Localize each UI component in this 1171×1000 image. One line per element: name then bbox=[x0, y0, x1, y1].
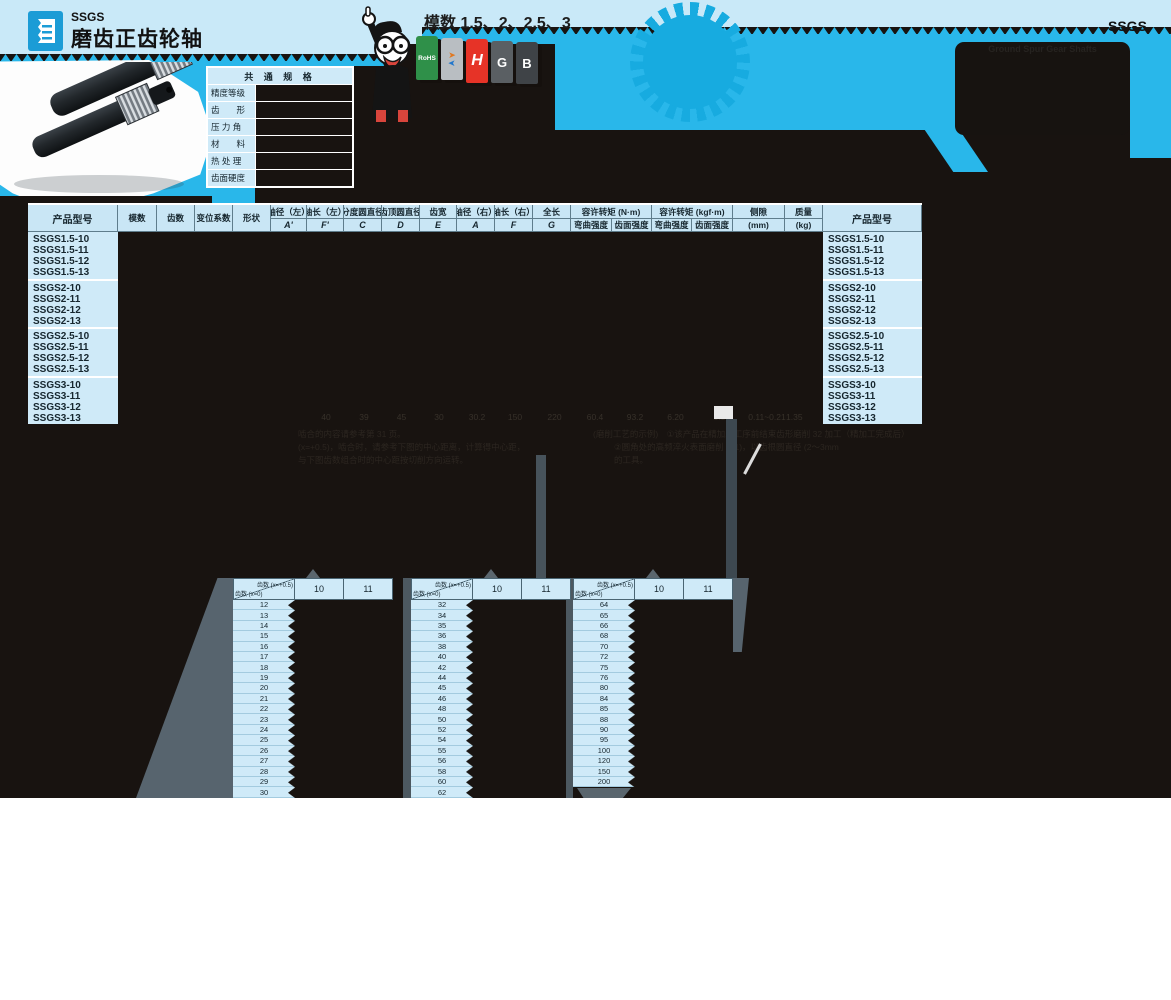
tooth-count-row: 40 bbox=[411, 652, 473, 662]
spec-value-obscured bbox=[255, 102, 352, 118]
product-group: SSGS3-10SSGS3-11SSGS3-12SSGS3-13 bbox=[823, 378, 922, 425]
tooth-count-row: 21 bbox=[233, 694, 295, 704]
sub-a: A bbox=[457, 219, 495, 232]
tooth-count-row: 200 bbox=[573, 777, 635, 787]
faint-note-right-1: (磨削工艺的示例) ①该产品在精加工工序前结束齿形磨削 32 加工（精加工完成后… bbox=[593, 428, 909, 441]
blue-band-mid bbox=[555, 34, 958, 130]
product-code: SSGS2-10 bbox=[828, 283, 922, 294]
faint-note-left-1: 啮合的内容请参考第 31 页。 bbox=[298, 428, 406, 441]
tooth-count-row: 95 bbox=[573, 735, 635, 745]
tooth-table-1: 齿数 (x=+0.5) 齿数 (x=0) 10 11 1213141516171… bbox=[233, 578, 393, 798]
rohs-badge: RoHS bbox=[416, 36, 438, 80]
tooth-count-row: 58 bbox=[411, 767, 473, 777]
product-code: SSGS3-10 bbox=[828, 380, 922, 391]
product-code: SSGS3-11 bbox=[33, 391, 118, 402]
tooth-count-row: 24 bbox=[233, 725, 295, 735]
product-code: SSGS3-13 bbox=[33, 413, 118, 424]
slate-strip-1 bbox=[403, 578, 411, 798]
tooth-count-row: 76 bbox=[573, 673, 635, 683]
col-torque-kgf: 容许转矩 (kgf·m) bbox=[652, 205, 733, 219]
common-specs-title: 共 通 规 格 bbox=[208, 68, 352, 84]
product-code: SSGS2.5-12 bbox=[33, 353, 118, 364]
spec-label: 热 处 理 bbox=[208, 153, 255, 169]
tooth-count-row: 90 bbox=[573, 725, 635, 735]
spec-row: 齿面硬度 bbox=[208, 169, 352, 186]
tooth-count-row: 16 bbox=[233, 642, 295, 652]
product-group: SSGS2.5-10SSGS2.5-11SSGS2.5-12SSGS2.5-13 bbox=[823, 329, 922, 376]
product-code: SSGS1.5-12 bbox=[33, 256, 118, 267]
main-product-table: 产品型号 模数 齿数 变位系数 形状 轴径（左） 轴长（左） 分度圆直径 齿顶圆… bbox=[28, 203, 922, 424]
tooth-count-row: 34 bbox=[411, 610, 473, 620]
product-code: SSGS2.5-12 bbox=[828, 353, 922, 364]
tooth-count-row: 68 bbox=[573, 631, 635, 641]
faint-cell: 0.11~0.21 bbox=[748, 411, 786, 423]
product-column-left: SSGS1.5-10SSGS1.5-11SSGS1.5-12SSGS1.5-13… bbox=[28, 232, 118, 424]
tooth-count-row: 23 bbox=[233, 714, 295, 724]
product-code: SSGS2-11 bbox=[828, 294, 922, 305]
col-tip-dia: 齿顶圆直径 bbox=[382, 205, 420, 219]
col-face-width: 齿宽 bbox=[420, 205, 457, 219]
tooth-rows: 32343536384042444546485052545556586062 bbox=[411, 600, 473, 798]
dark-info-box: Ground Spur Gear Shafts bbox=[955, 42, 1130, 135]
product-code: SSGS3-13 bbox=[828, 413, 922, 424]
col-shaft-len-left: 轴长（左） bbox=[307, 205, 344, 219]
page-bottom-margin bbox=[0, 798, 1171, 1000]
tooth-rows: 12131415161718192021222324252627282930 bbox=[233, 600, 295, 798]
product-code: SSGS2-10 bbox=[33, 283, 118, 294]
col-10: 10 bbox=[295, 578, 344, 600]
tooth-count-row: 60 bbox=[411, 777, 473, 787]
col-11: 11 bbox=[344, 578, 393, 600]
main-table-body: SSGS1.5-10SSGS1.5-11SSGS1.5-12SSGS1.5-13… bbox=[28, 232, 922, 424]
tooth-count-row: 120 bbox=[573, 756, 635, 766]
product-code: SSGS1.5-12 bbox=[828, 256, 922, 267]
faint-cell: 150 bbox=[496, 411, 534, 423]
tooth-count-row: 44 bbox=[411, 673, 473, 683]
diagonal-header-cell: 齿数 (x=+0.5) 齿数 (x=0) bbox=[573, 578, 635, 600]
col-module: 模数 bbox=[118, 205, 157, 232]
col-10: 10 bbox=[635, 578, 684, 600]
product-code: SSGS1.5-10 bbox=[828, 234, 922, 245]
teeth-shifted-label: 齿数 (x=+0.5) bbox=[435, 580, 471, 589]
black-badge: B bbox=[516, 42, 538, 84]
spec-row: 热 处 理 bbox=[208, 152, 352, 169]
product-column-right: SSGS1.5-10SSGS1.5-11SSGS1.5-12SSGS1.5-13… bbox=[823, 232, 922, 424]
product-code: SSGS2-13 bbox=[828, 316, 922, 327]
tooth-count-row: 64 bbox=[573, 600, 635, 610]
sub-f-prime: F' bbox=[307, 219, 344, 232]
sub-e: E bbox=[420, 219, 457, 232]
faint-cell: 40 bbox=[307, 411, 345, 423]
tooth-count-row: 55 bbox=[411, 746, 473, 756]
tooth-count-row: 45 bbox=[411, 683, 473, 693]
common-specs-table: 共 通 规 格 精度等级 齿 形 压 力 角 材 bbox=[206, 66, 354, 188]
spec-row: 齿 形 bbox=[208, 101, 352, 118]
tooth-count-row: 36 bbox=[411, 631, 473, 641]
spec-row: 精度等级 bbox=[208, 84, 352, 101]
faint-cell: 30.2 bbox=[458, 411, 496, 423]
sub-a-prime: A' bbox=[271, 219, 307, 232]
col-shaft-dia-right: 轴径（右） bbox=[457, 205, 495, 219]
product-code: SSGS3-12 bbox=[33, 402, 118, 413]
gear-icon bbox=[630, 2, 750, 122]
spec-value-obscured bbox=[255, 153, 352, 169]
finishing-badge: ➤➤ bbox=[441, 38, 463, 80]
tooth-count-row: 19 bbox=[233, 673, 295, 683]
product-code: SSGS1.5-13 bbox=[33, 267, 118, 278]
tooth-count-row: 100 bbox=[573, 746, 635, 756]
tooth-count-row: 38 bbox=[411, 642, 473, 652]
product-code: SSGS2-13 bbox=[33, 316, 118, 327]
tooth-count-row: 88 bbox=[573, 714, 635, 724]
common-specs-rows: 精度等级 齿 形 压 力 角 材 料 bbox=[208, 84, 352, 186]
module-note: 模数 1.5、2、2.5、3 bbox=[424, 9, 571, 33]
tooth-count-row: 13 bbox=[233, 610, 295, 620]
tooth-count-row: 42 bbox=[411, 662, 473, 672]
ground-badge: G bbox=[491, 41, 513, 83]
catalog-page: Ground Spur Gear Shafts bbox=[0, 0, 1171, 1000]
product-group: SSGS2-10SSGS2-11SSGS2-12SSGS2-13 bbox=[823, 281, 922, 328]
faint-cell: 45 bbox=[383, 411, 420, 423]
tooth-count-row: 50 bbox=[411, 714, 473, 724]
spec-label: 压 力 角 bbox=[208, 119, 255, 135]
spec-row: 材 料 bbox=[208, 135, 352, 152]
tooth-count-row: 84 bbox=[573, 694, 635, 704]
product-code: SSGS1.5-10 bbox=[33, 234, 118, 245]
faint-cell: 39 bbox=[345, 411, 383, 423]
sawtooth-edge-icon bbox=[628, 600, 635, 788]
spec-row: 压 力 角 bbox=[208, 118, 352, 135]
sub-c: C bbox=[344, 219, 382, 232]
sub-surface-nm: 齿面强度 bbox=[612, 219, 652, 232]
col-shift: 变位系数 bbox=[195, 205, 233, 232]
teeth-standard-label: 齿数 (x=0) bbox=[575, 589, 603, 598]
faint-english-title: Ground Spur Gear Shafts bbox=[988, 44, 1097, 54]
sub-mass-unit: (kg) bbox=[785, 219, 823, 232]
col-10: 10 bbox=[473, 578, 522, 600]
blue-square-right bbox=[1130, 34, 1171, 158]
faint-cell: 93.2 bbox=[615, 411, 655, 423]
faint-cell: 220 bbox=[534, 411, 575, 423]
spec-value-obscured bbox=[255, 119, 352, 135]
tooth-count-row: 12 bbox=[233, 600, 295, 610]
faint-note-left-3: 与下图齿数组合时的中心距按切削方向运转。 bbox=[298, 454, 468, 467]
product-code: SSGS2.5-10 bbox=[33, 331, 118, 342]
dark-mass-right bbox=[555, 130, 1171, 205]
faint-cell: 6.20 bbox=[655, 411, 696, 423]
spec-label: 齿面硬度 bbox=[208, 170, 255, 186]
tooth-count-row: 17 bbox=[233, 652, 295, 662]
hardened-badge: H bbox=[466, 39, 488, 83]
col-total-length: 全长 bbox=[533, 205, 571, 219]
faint-cell: 30 bbox=[420, 411, 458, 423]
product-code: SSGS2-12 bbox=[828, 305, 922, 316]
product-code: SSGS2.5-10 bbox=[828, 331, 922, 342]
spec-value-obscured bbox=[255, 170, 352, 186]
sub-surface-kgf: 齿面强度 bbox=[692, 219, 733, 232]
product-code: SSGS2-11 bbox=[33, 294, 118, 305]
tooth-count-row: 28 bbox=[233, 767, 295, 777]
tooth-count-row: 56 bbox=[411, 756, 473, 766]
tooth-count-row: 65 bbox=[573, 610, 635, 620]
spec-label: 材 料 bbox=[208, 136, 255, 152]
tooth-count-row: 32 bbox=[411, 600, 473, 610]
tooth-table-2: 齿数 (x=+0.5) 齿数 (x=0) 10 11 3234353638404… bbox=[411, 578, 571, 798]
product-code: SSGS3-11 bbox=[828, 391, 922, 402]
product-code: SSGS3-12 bbox=[828, 402, 922, 413]
tooth-table-header: 齿数 (x=+0.5) 齿数 (x=0) 10 11 bbox=[573, 578, 733, 600]
diagonal-header-cell: 齿数 (x=+0.5) 齿数 (x=0) bbox=[233, 578, 295, 600]
corner-code: SSGS bbox=[1108, 18, 1147, 34]
certification-badges: RoHS ➤➤ H G B bbox=[416, 36, 538, 80]
product-code: SSGS1.5-11 bbox=[828, 245, 922, 256]
product-code: SSGS2-12 bbox=[33, 305, 118, 316]
sub-bending-kgf: 弯曲强度 bbox=[652, 219, 692, 232]
tooth-count-row: 27 bbox=[233, 756, 295, 766]
faint-cell: 60.4 bbox=[575, 411, 615, 423]
col-backlash: 侧隙 bbox=[733, 205, 785, 219]
series-logo-icon bbox=[28, 11, 63, 51]
tooth-count-row: 48 bbox=[411, 704, 473, 714]
spec-label: 齿 形 bbox=[208, 102, 255, 118]
tooth-count-row: 80 bbox=[573, 683, 635, 693]
tooth-count-row: 150 bbox=[573, 767, 635, 777]
spec-value-obscured bbox=[255, 136, 352, 152]
tooth-count-row: 66 bbox=[573, 621, 635, 631]
tooth-count-row: 70 bbox=[573, 642, 635, 652]
product-group: SSGS1.5-10SSGS1.5-11SSGS1.5-12SSGS1.5-13 bbox=[823, 232, 922, 279]
product-code: SSGS1.5-11 bbox=[33, 245, 118, 256]
sawtooth-edge-icon bbox=[466, 600, 473, 798]
tooth-count-row: 30 bbox=[233, 787, 295, 797]
slate-cap bbox=[577, 788, 631, 798]
tooth-table-header: 齿数 (x=+0.5) 齿数 (x=0) 10 11 bbox=[233, 578, 393, 600]
tooth-count-row: 35 bbox=[411, 621, 473, 631]
tooth-count-row: 75 bbox=[573, 662, 635, 672]
product-code: SSGS2.5-13 bbox=[828, 364, 922, 375]
col-product-left: 产品型号 bbox=[28, 205, 118, 232]
tooth-count-row: 20 bbox=[233, 683, 295, 693]
product-group: SSGS2.5-10SSGS2.5-11SSGS2.5-12SSGS2.5-13 bbox=[28, 329, 118, 376]
tooth-table-3: 齿数 (x=+0.5) 齿数 (x=0) 10 11 6465666870727… bbox=[573, 578, 733, 787]
col-shaft-dia-left: 轴径（左） bbox=[271, 205, 307, 219]
series-code: SSGS bbox=[71, 10, 104, 24]
diagonal-header-cell: 齿数 (x=+0.5) 齿数 (x=0) bbox=[411, 578, 473, 600]
teeth-standard-label: 齿数 (x=0) bbox=[413, 589, 441, 598]
white-fragment bbox=[714, 406, 733, 419]
tooth-table-header: 齿数 (x=+0.5) 齿数 (x=0) 10 11 bbox=[411, 578, 571, 600]
col-product-right: 产品型号 bbox=[823, 205, 922, 232]
page-title: 磨齿正齿轮轴 bbox=[71, 23, 203, 53]
product-group: SSGS3-10SSGS3-11SSGS3-12SSGS3-13 bbox=[28, 378, 118, 425]
gray-bar-1 bbox=[536, 455, 546, 578]
col-pitch-dia: 分度圆直径 bbox=[344, 205, 382, 219]
product-code: SSGS1.5-13 bbox=[828, 267, 922, 278]
product-group: SSGS1.5-10SSGS1.5-11SSGS1.5-12SSGS1.5-13 bbox=[28, 232, 118, 279]
main-table-header: 产品型号 模数 齿数 变位系数 形状 轴径（左） 轴长（左） 分度圆直径 齿顶圆… bbox=[28, 205, 922, 232]
product-code: SSGS2.5-11 bbox=[33, 342, 118, 353]
sub-g: G bbox=[533, 219, 571, 232]
arrows-icon: ➤➤ bbox=[448, 51, 456, 67]
tooth-count-row: 85 bbox=[573, 704, 635, 714]
product-group: SSGS2-10SSGS2-11SSGS2-12SSGS2-13 bbox=[28, 281, 118, 328]
product-code: SSGS3-10 bbox=[33, 380, 118, 391]
tooth-count-row: 22 bbox=[233, 704, 295, 714]
col-shape: 形状 bbox=[233, 205, 271, 232]
tooth-count-row: 29 bbox=[233, 777, 295, 787]
tooth-count-row: 72 bbox=[573, 652, 635, 662]
col-11: 11 bbox=[522, 578, 571, 600]
tooth-count-row: 46 bbox=[411, 694, 473, 704]
col-11: 11 bbox=[684, 578, 733, 600]
tooth-count-row: 26 bbox=[233, 746, 295, 756]
tooth-count-row: 25 bbox=[233, 735, 295, 745]
teeth-shifted-label: 齿数 (x=+0.5) bbox=[257, 580, 293, 589]
sub-d: D bbox=[382, 219, 420, 232]
faint-cell: 1.35 bbox=[786, 411, 803, 423]
col-torque-nm: 容许转矩 (N·m) bbox=[571, 205, 652, 219]
teeth-shifted-label: 齿数 (x=+0.5) bbox=[597, 580, 633, 589]
tooth-count-row: 54 bbox=[411, 735, 473, 745]
tooth-rows: 6465666870727576808485889095100120150200 bbox=[573, 600, 635, 787]
sawtooth-edge-icon bbox=[288, 600, 295, 798]
tooth-count-row: 18 bbox=[233, 662, 295, 672]
col-mass: 质量 bbox=[785, 205, 823, 219]
tooth-count-row: 52 bbox=[411, 725, 473, 735]
gray-bar-2 bbox=[726, 419, 737, 578]
spec-label: 精度等级 bbox=[208, 85, 255, 101]
teeth-standard-label: 齿数 (x=0) bbox=[235, 589, 263, 598]
product-code: SSGS2.5-11 bbox=[828, 342, 922, 353]
spec-value-obscured bbox=[255, 85, 352, 101]
col-teeth: 齿数 bbox=[157, 205, 195, 232]
sub-backlash-unit: (mm) bbox=[733, 219, 785, 232]
sub-bending-nm: 弯曲强度 bbox=[571, 219, 612, 232]
gear-shafts-image bbox=[4, 62, 214, 204]
faint-note-right-3: 的工具。 bbox=[614, 454, 648, 467]
tooth-count-row: 14 bbox=[233, 621, 295, 631]
col-shaft-len-right: 轴长（右） bbox=[495, 205, 533, 219]
sub-f: F bbox=[495, 219, 533, 232]
product-code: SSGS2.5-13 bbox=[33, 364, 118, 375]
faint-note-left-2: (x=+0.5)，啮合时，请参考下图的中心距离，计算得中心距， bbox=[298, 441, 525, 454]
tooth-count-row: 62 bbox=[411, 787, 473, 797]
tooth-count-row: 15 bbox=[233, 631, 295, 641]
